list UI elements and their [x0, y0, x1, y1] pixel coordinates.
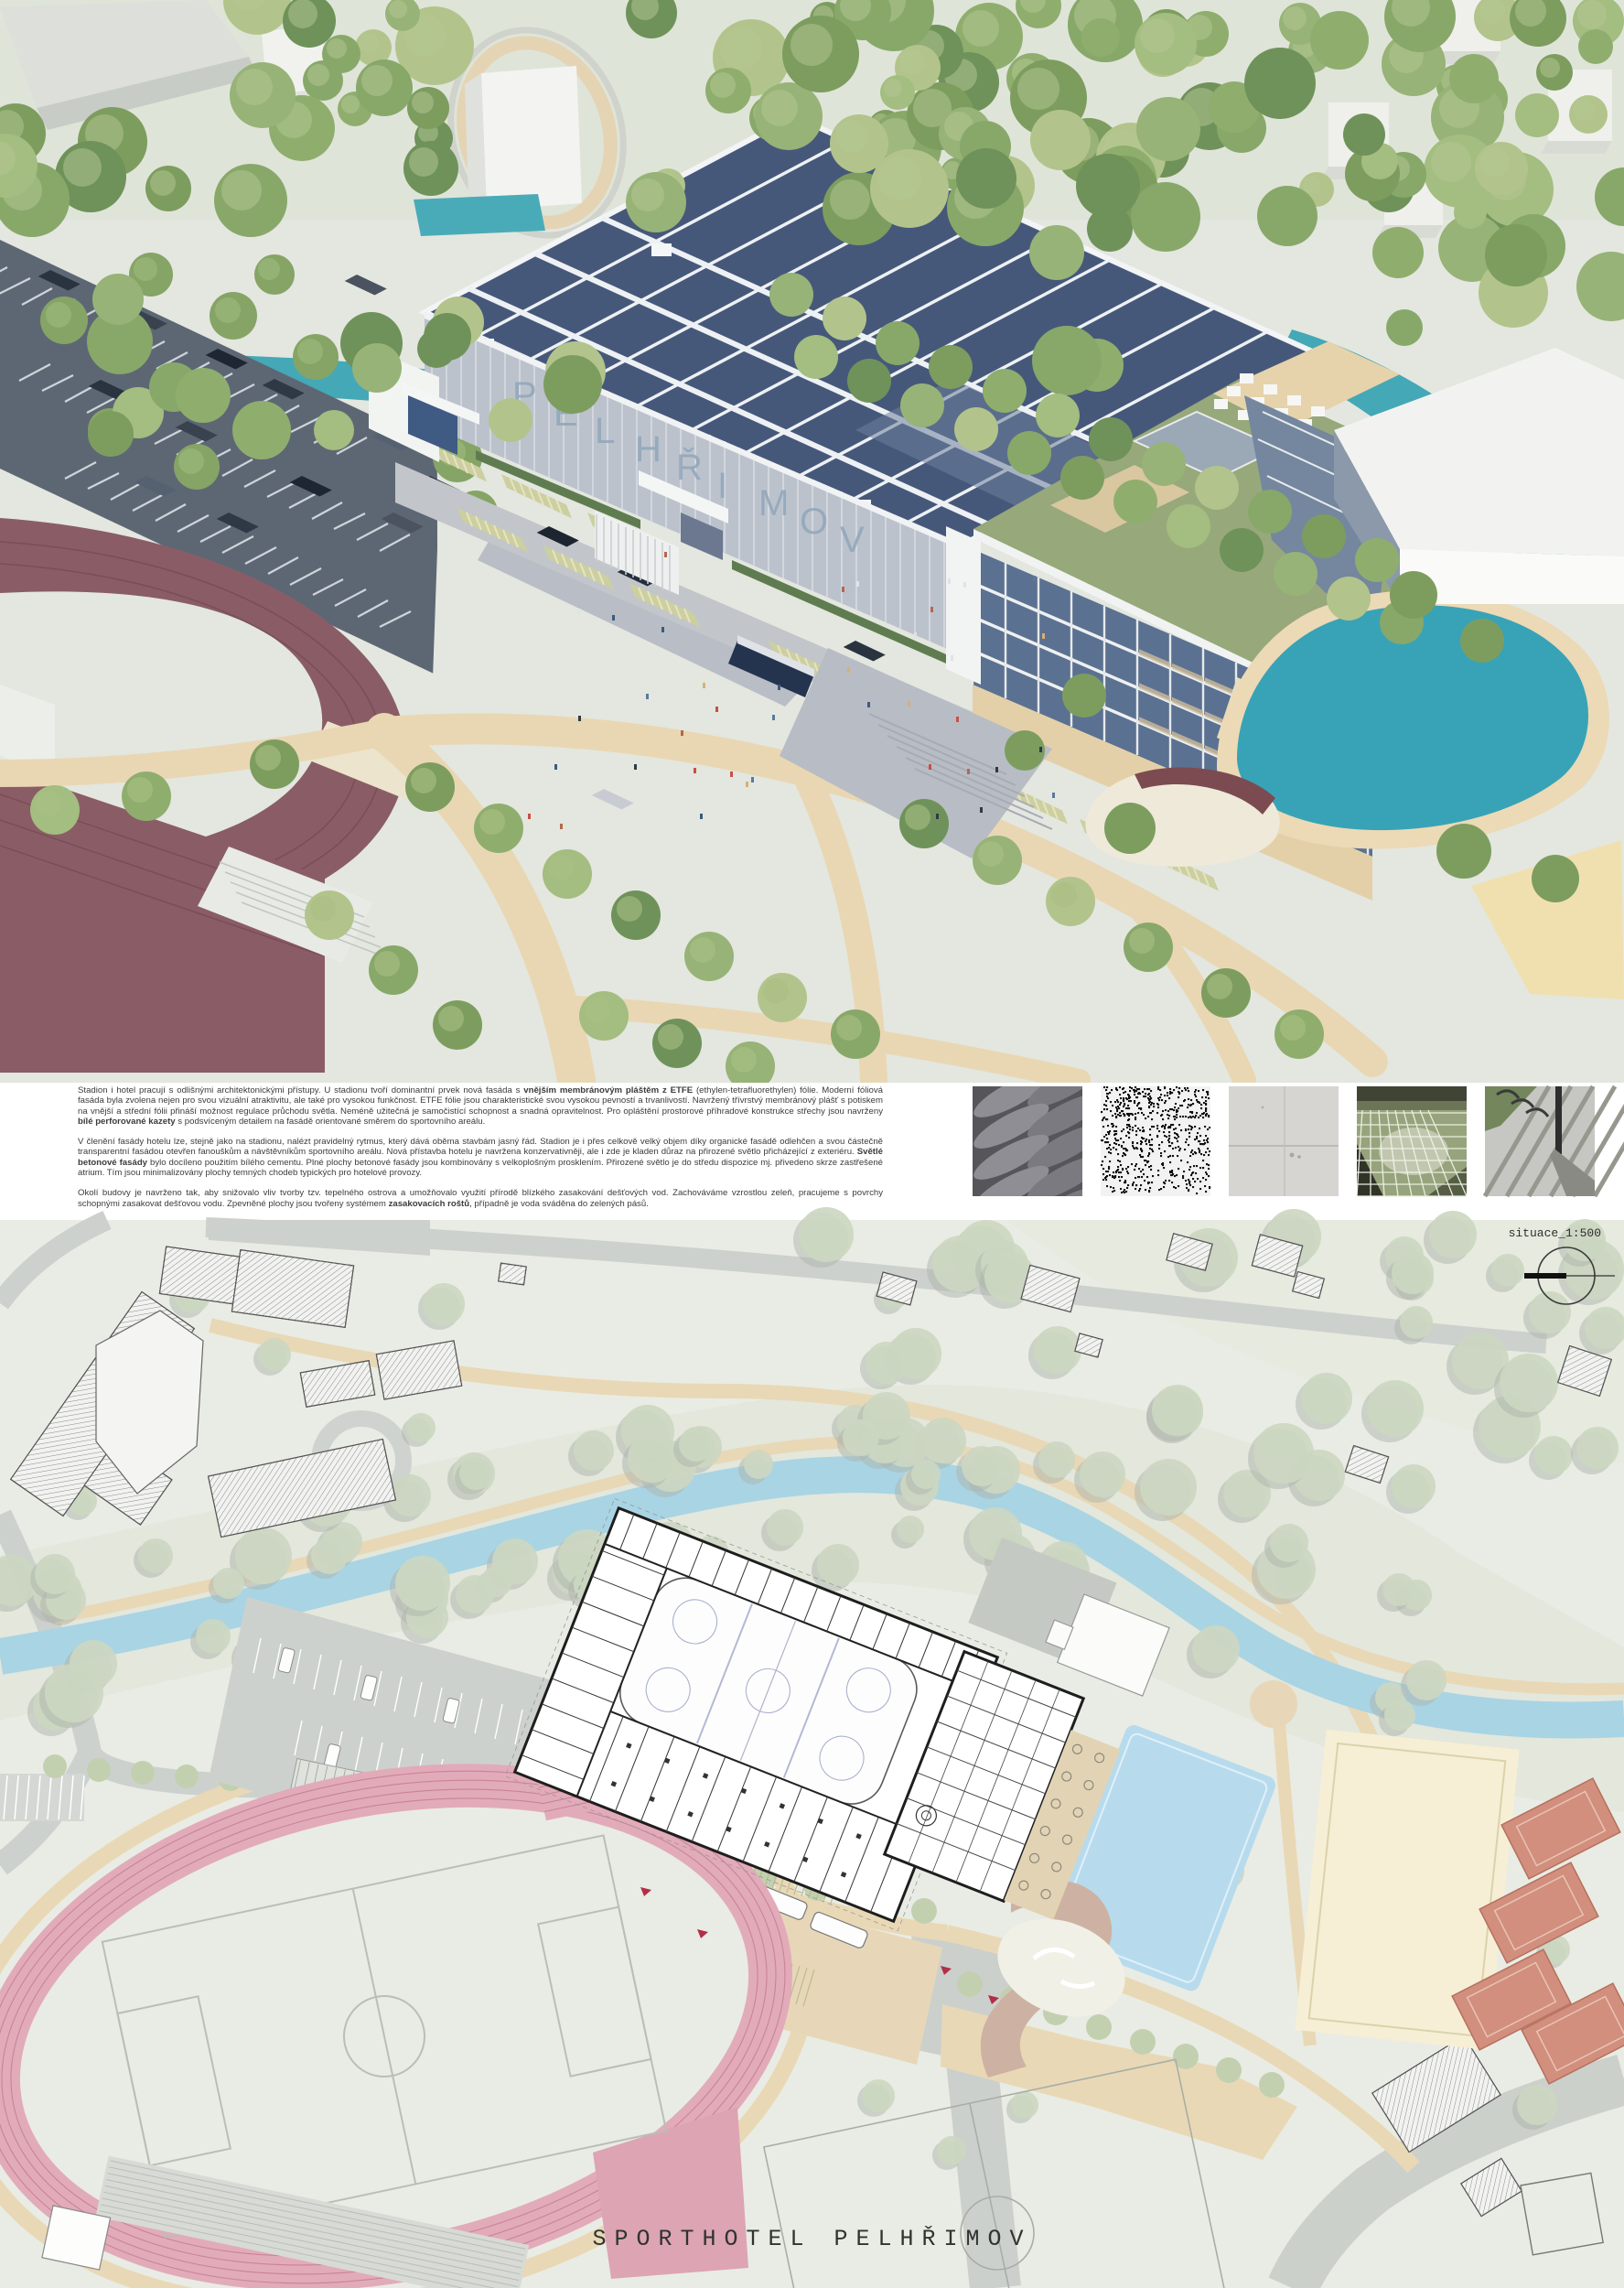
svg-text:I: I [717, 466, 727, 506]
svg-text:H: H [635, 429, 661, 469]
svg-text:V: V [840, 520, 865, 560]
svg-text:M: M [758, 483, 789, 523]
svg-text:Ř: Ř [676, 447, 703, 488]
svg-text:O: O [800, 502, 828, 542]
svg-text:L: L [595, 411, 615, 451]
